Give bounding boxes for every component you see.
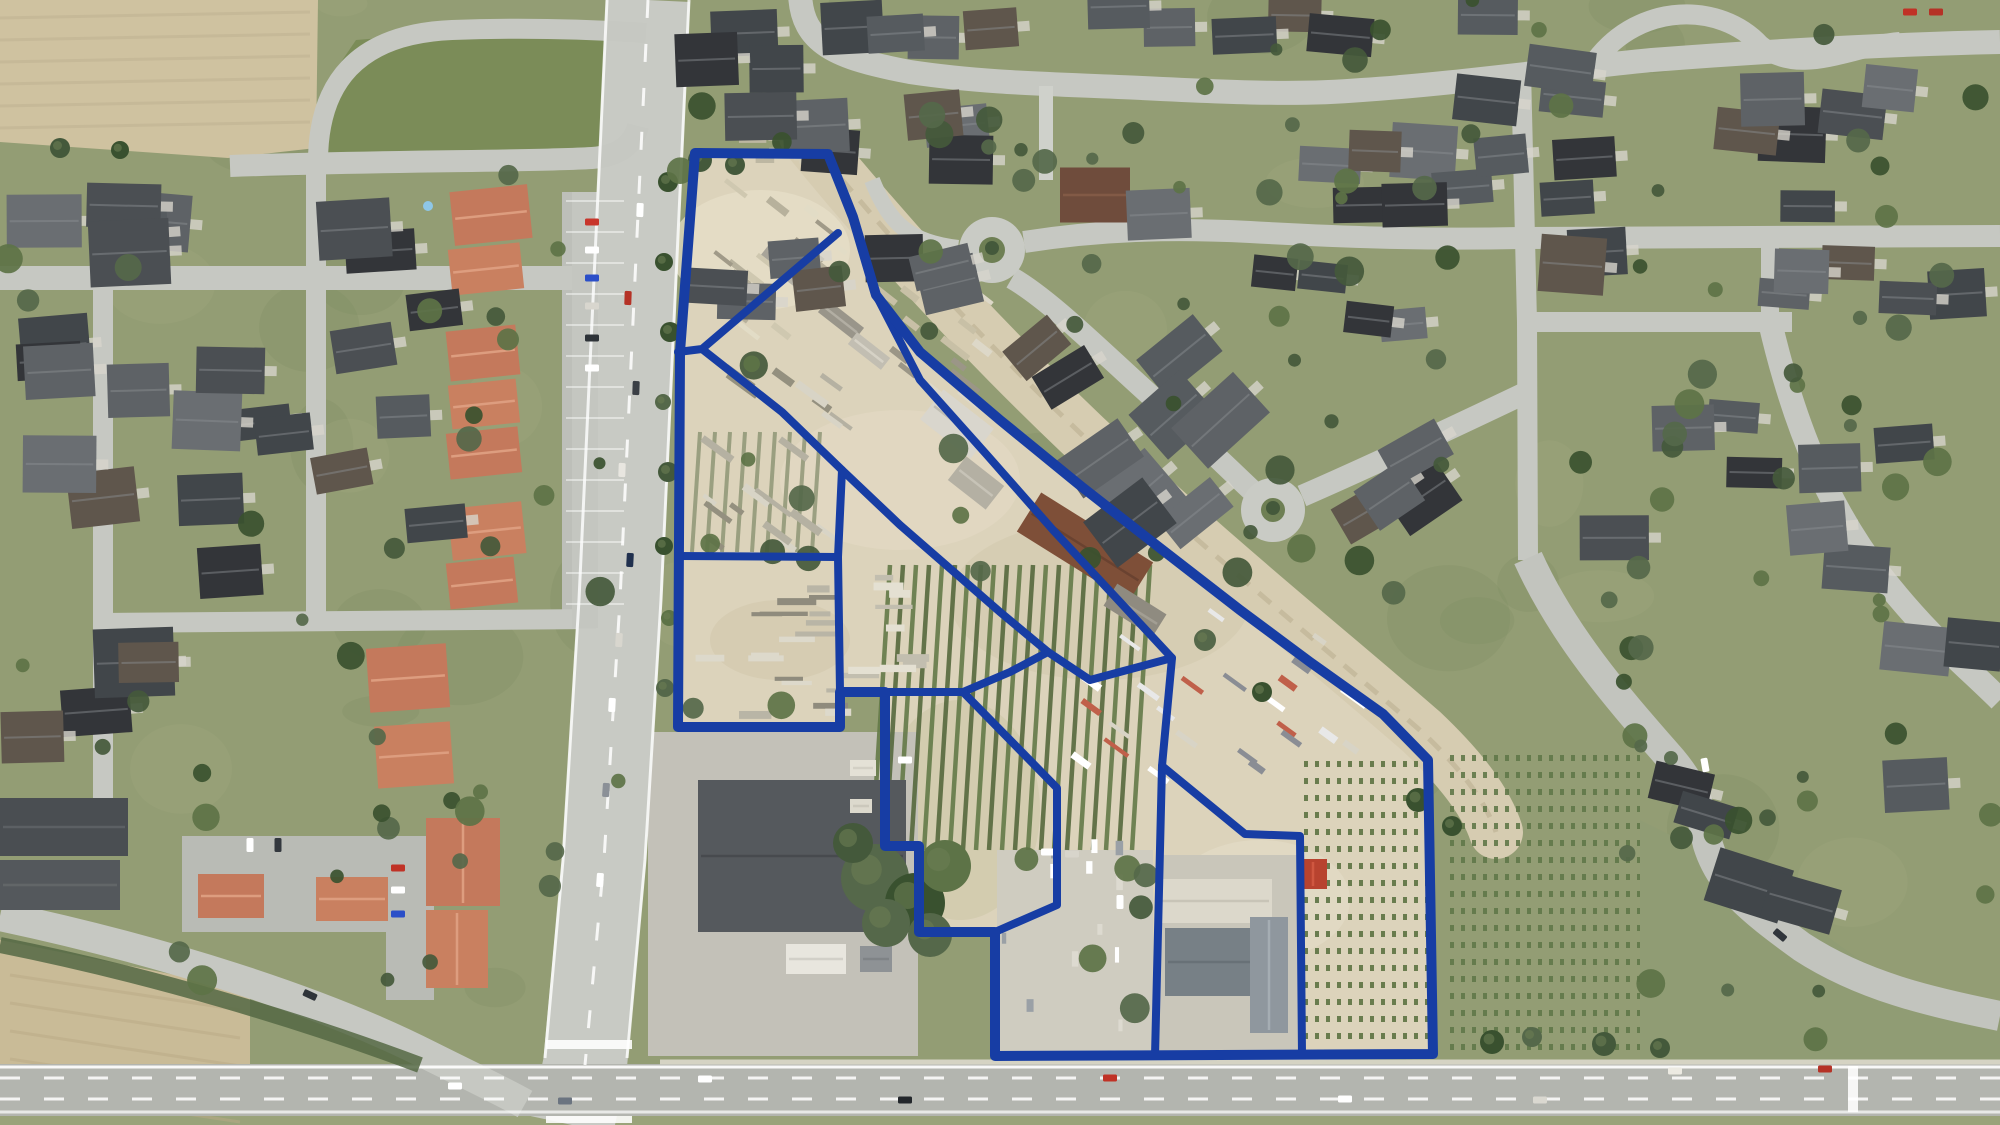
building: [316, 877, 388, 921]
building: [786, 944, 846, 974]
vehicle: [596, 873, 604, 887]
building: [198, 874, 264, 918]
vehicle: [632, 381, 639, 395]
building: [449, 184, 532, 246]
house: [1943, 617, 2000, 672]
vehicle: [391, 911, 405, 918]
vehicle: [1533, 1097, 1547, 1104]
vehicle: [608, 698, 616, 712]
building: [0, 860, 120, 910]
vehicle: [275, 838, 282, 852]
building: [1158, 879, 1272, 923]
building: [860, 946, 892, 972]
building: [448, 379, 520, 430]
vehicle: [626, 553, 634, 567]
vehicle: [585, 365, 599, 372]
vehicle: [898, 1097, 912, 1104]
lot-line-3: [679, 556, 838, 557]
house: [23, 435, 109, 493]
building: [426, 910, 488, 988]
vehicle: [558, 1098, 572, 1105]
vehicle: [1117, 895, 1124, 909]
building: [446, 557, 518, 610]
house: [1580, 515, 1661, 560]
vehicle: [247, 838, 254, 852]
building: [448, 242, 524, 295]
vehicle: [585, 219, 599, 226]
aerial-imagery-map: [0, 0, 2000, 1125]
vehicle: [602, 783, 610, 797]
aerial-map-canvas: [0, 0, 2000, 1125]
building: [850, 799, 872, 813]
building: [366, 643, 450, 712]
house: [7, 194, 94, 248]
vehicle: [615, 633, 623, 647]
vehicle: [698, 1076, 712, 1083]
vehicle: [1903, 9, 1917, 16]
building: [1250, 917, 1288, 1033]
swimming-pool: [423, 201, 433, 211]
building: [374, 721, 454, 788]
building: [1060, 168, 1130, 223]
vehicle: [1338, 1096, 1352, 1103]
crosswalk: [546, 1116, 632, 1123]
vehicle: [898, 757, 912, 764]
building: [0, 798, 128, 856]
vehicle: [1668, 1068, 1682, 1075]
vehicle: [585, 303, 599, 310]
vehicle: [636, 203, 643, 217]
vehicle: [1818, 1066, 1832, 1073]
building: [850, 760, 876, 776]
vehicle: [618, 463, 625, 477]
vehicle: [1103, 1075, 1117, 1082]
vehicle: [624, 291, 631, 305]
vehicle: [1041, 849, 1055, 856]
vehicle: [585, 335, 599, 342]
vehicle: [1065, 851, 1079, 858]
vehicle: [585, 275, 599, 282]
vehicle: [448, 1083, 462, 1090]
vehicle: [391, 865, 405, 872]
vehicle: [585, 247, 599, 254]
vehicle: [1929, 9, 1943, 16]
vehicle: [391, 887, 405, 894]
crosswalk: [1848, 1066, 1858, 1112]
crosswalk: [546, 1040, 632, 1049]
road: [103, 619, 596, 623]
